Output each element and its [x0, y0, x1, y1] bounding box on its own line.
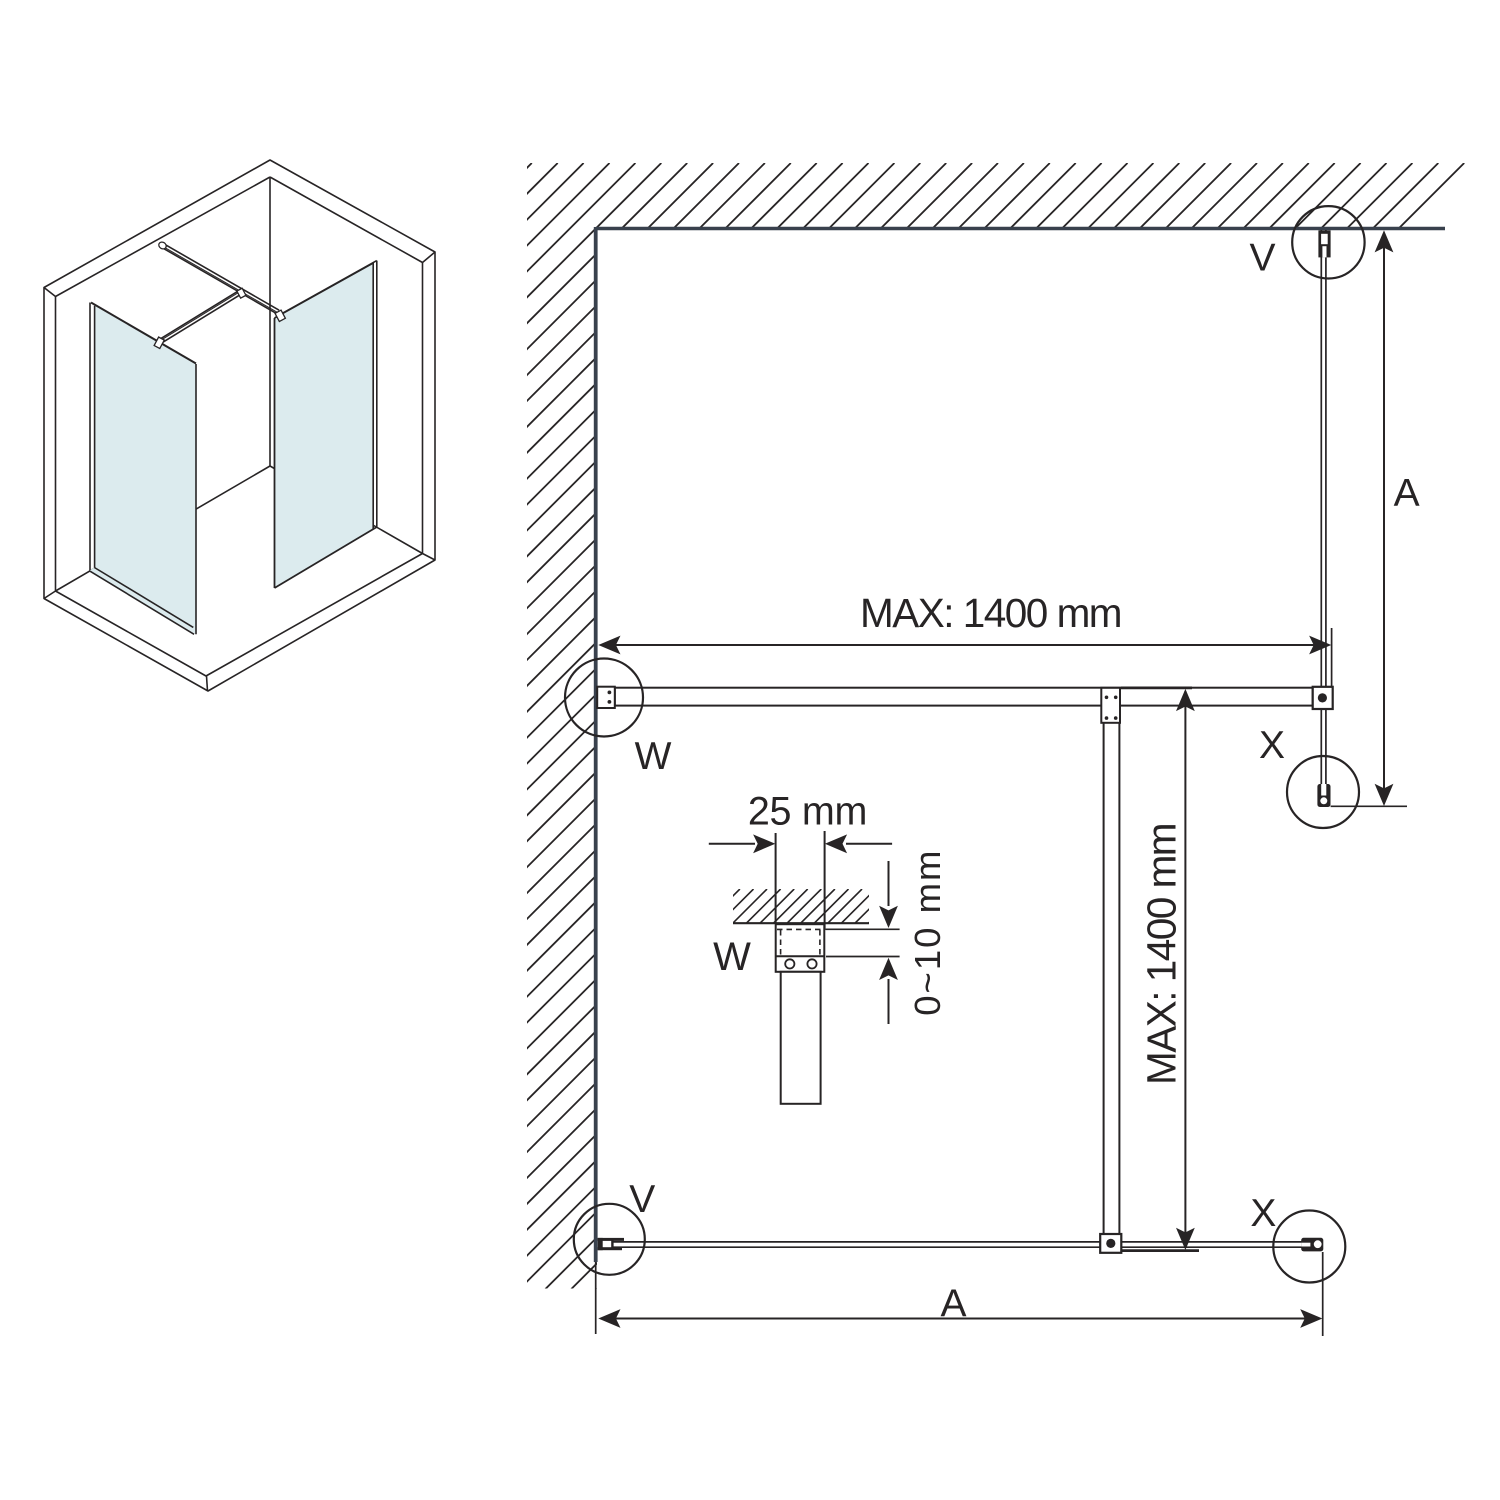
svg-text:V: V — [629, 1178, 655, 1221]
svg-text:X: X — [1250, 1192, 1276, 1235]
svg-text:W: W — [635, 735, 672, 778]
svg-text:A: A — [1394, 472, 1420, 515]
svg-text:0~10 mm: 0~10 mm — [907, 849, 948, 1016]
svg-text:A: A — [940, 1283, 966, 1326]
svg-text:W: W — [713, 935, 751, 979]
svg-text:MAX: 1400 mm: MAX: 1400 mm — [860, 590, 1121, 636]
svg-text:MAX: 1400 mm: MAX: 1400 mm — [1139, 824, 1185, 1085]
svg-text:V: V — [1249, 237, 1275, 280]
svg-text:25 mm: 25 mm — [748, 790, 867, 834]
svg-text:X: X — [1259, 724, 1285, 767]
